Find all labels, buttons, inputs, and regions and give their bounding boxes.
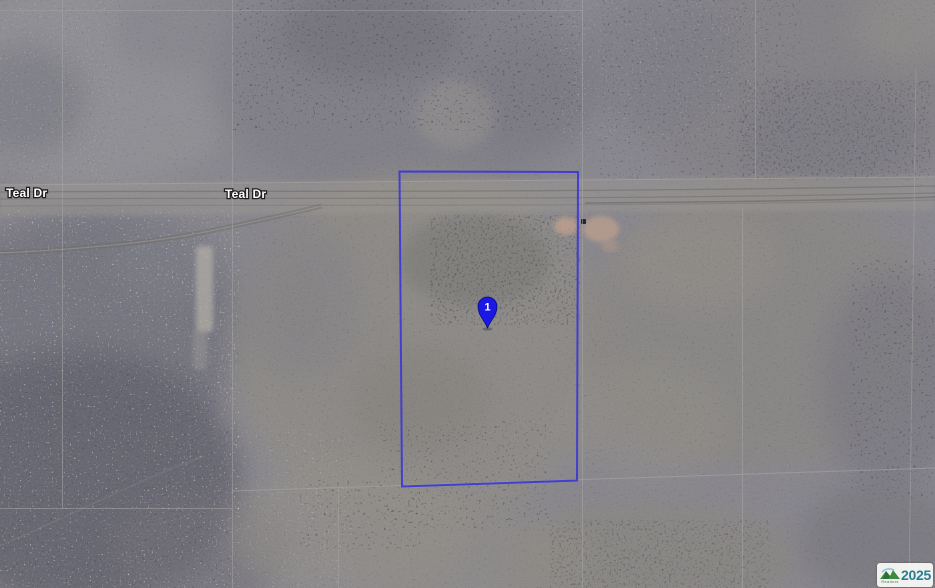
watermark-year: 2025 [901, 567, 931, 583]
watermark-brand: Realtors [881, 580, 898, 584]
watermark: Realtors 2025 [877, 563, 933, 587]
satellite-map[interactable]: Teal Dr Teal Dr 1 [0, 0, 935, 588]
road-label-teal-dr-east: Teal Dr [225, 187, 266, 201]
pin-label: 1 [484, 302, 490, 314]
terrain [0, 0, 935, 588]
road-label-teal-dr-west: Teal Dr [6, 186, 47, 200]
watermark-logo: Realtors [879, 567, 901, 584]
small-structure [581, 219, 586, 224]
map-view[interactable]: Teal Dr Teal Dr 1 Realtors 2025 [0, 0, 935, 588]
